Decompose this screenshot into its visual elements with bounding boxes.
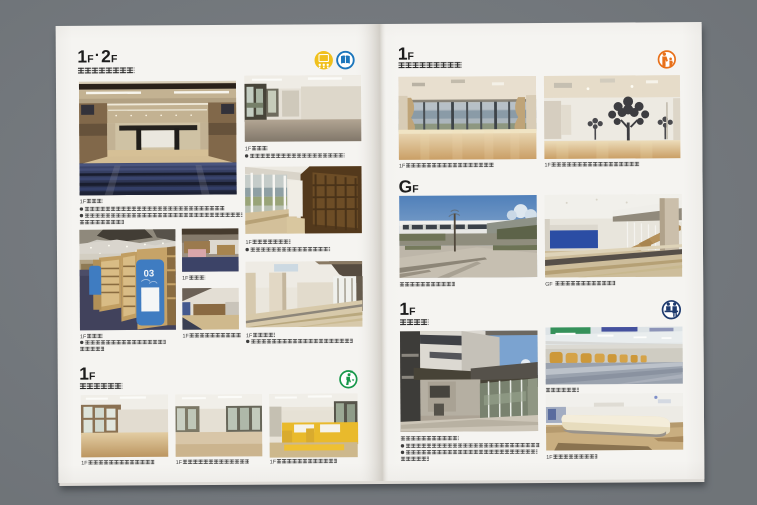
svg-text:1F: 1F bbox=[182, 275, 189, 281]
svg-text:1F: 1F bbox=[544, 162, 551, 168]
svg-text:1F: 1F bbox=[399, 298, 416, 318]
svg-text:1F: 1F bbox=[397, 43, 414, 63]
svg-text:1F: 1F bbox=[79, 199, 86, 205]
svg-text:1F: 1F bbox=[398, 163, 405, 169]
svg-text:1F: 1F bbox=[244, 146, 251, 152]
svg-text:1F: 1F bbox=[79, 334, 86, 340]
svg-text:1F: 1F bbox=[269, 459, 276, 465]
svg-text:1F: 1F bbox=[546, 454, 553, 460]
svg-text:1F: 1F bbox=[79, 363, 96, 383]
svg-text:03: 03 bbox=[143, 268, 154, 279]
svg-text:1F: 1F bbox=[245, 333, 252, 339]
svg-text:1F: 1F bbox=[182, 333, 189, 339]
svg-text:1F·2F: 1F·2F bbox=[77, 46, 118, 66]
svg-text:1F: 1F bbox=[81, 460, 88, 466]
svg-text:1F: 1F bbox=[245, 239, 252, 245]
svg-text:1F: 1F bbox=[175, 460, 182, 466]
svg-text:GF: GF bbox=[398, 176, 419, 196]
svg-text:GF: GF bbox=[545, 281, 553, 287]
